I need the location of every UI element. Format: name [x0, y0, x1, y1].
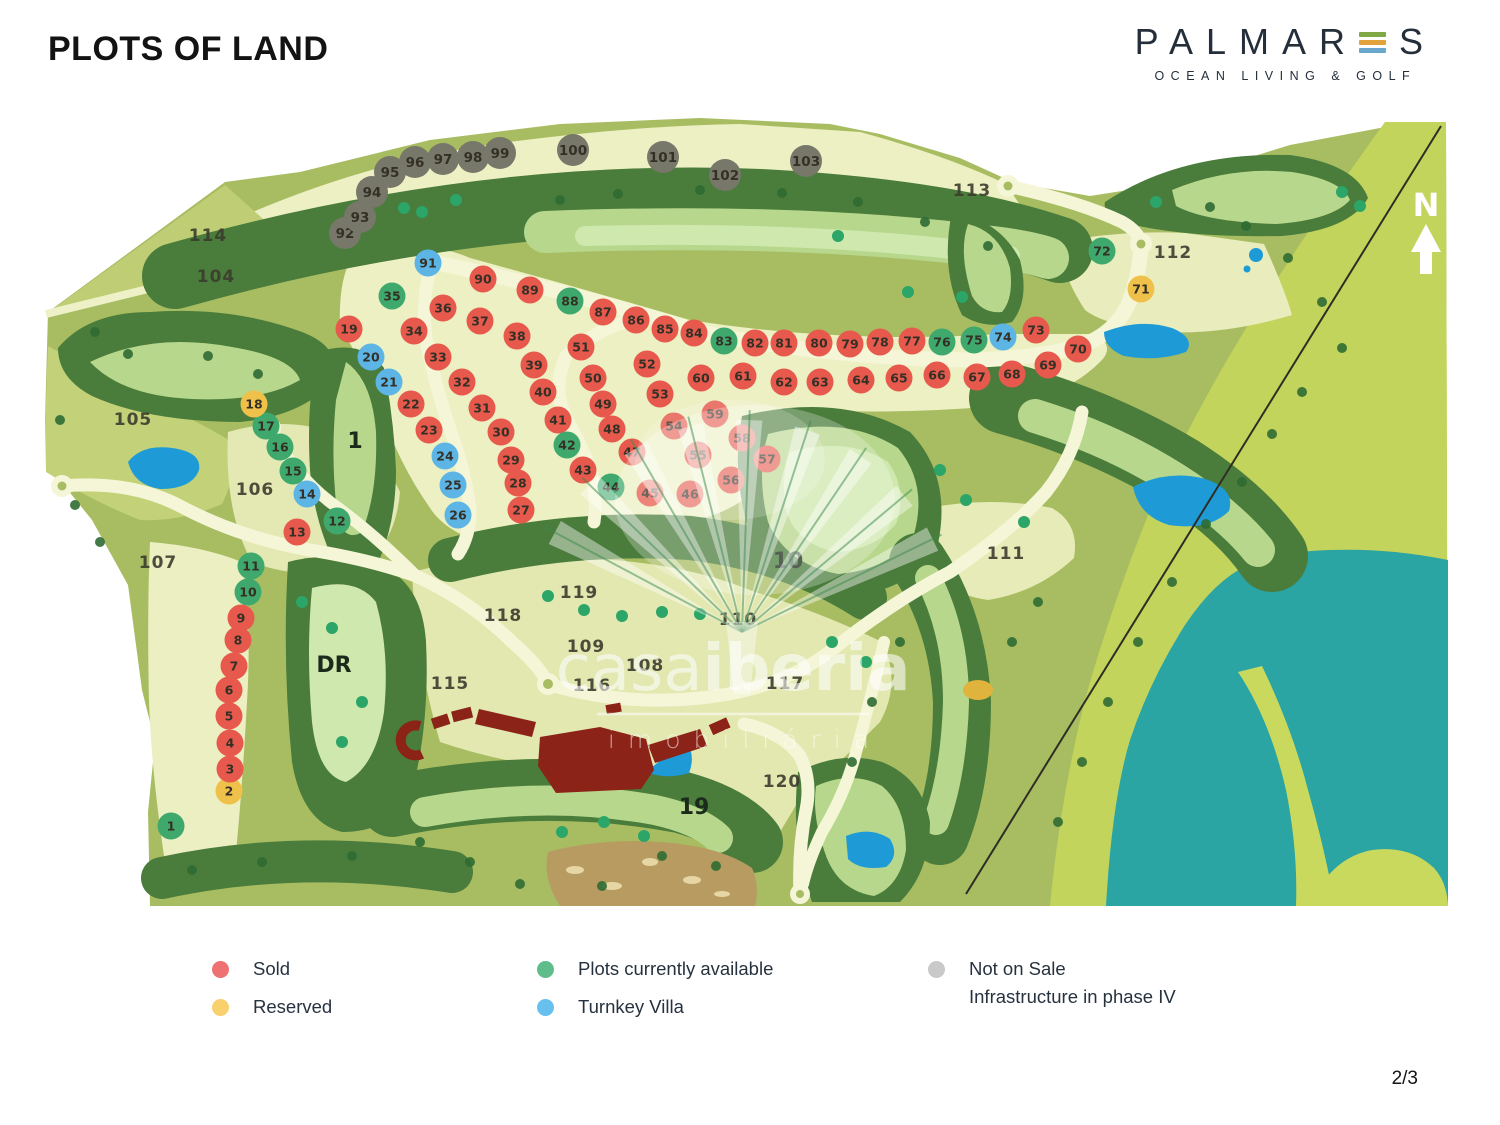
plot-number: 21 [380, 375, 397, 390]
plot-number: 2 [225, 784, 234, 799]
plot-marker-65: 65 [886, 365, 913, 392]
plot-number: 29 [502, 453, 519, 468]
hole-label-1: 1 [347, 429, 362, 454]
plot-marker-97: 97 [427, 143, 459, 175]
legend-label: Turnkey Villa [578, 996, 684, 1018]
legend-item-not-on-sale: Not on Sale [928, 958, 1176, 980]
plot-number: 61 [734, 369, 751, 384]
watermark-subtext: imobiliária [608, 725, 882, 754]
plot-marker-84: 84 [681, 320, 708, 347]
plot-marker-49: 49 [590, 391, 617, 418]
turnkey-dot-icon [537, 999, 554, 1016]
plot-number: 98 [464, 150, 483, 166]
plot-number: 13 [288, 525, 305, 540]
parcel-label-104: 104 [197, 267, 236, 287]
parcel-label-112: 112 [1154, 243, 1193, 263]
plot-marker-10: 10 [235, 579, 262, 606]
plot-number: 39 [525, 358, 542, 373]
plot-number: 43 [574, 463, 591, 478]
plot-number: 88 [561, 294, 578, 309]
plot-number: 93 [351, 210, 370, 226]
plot-marker-62: 62 [771, 369, 798, 396]
plot-number: 72 [1093, 244, 1110, 259]
plot-marker-52: 52 [634, 351, 661, 378]
hole-label-19: 19 [679, 795, 710, 820]
plot-marker-36: 36 [430, 295, 457, 322]
parcel-label-120: 120 [763, 772, 802, 792]
plot-number: 12 [328, 514, 345, 529]
plot-marker-40: 40 [530, 379, 557, 406]
plot-marker-64: 64 [848, 367, 875, 394]
legend-label: Reserved [253, 996, 332, 1018]
plot-number: 69 [1039, 358, 1056, 373]
plot-marker-35: 35 [379, 283, 406, 310]
plot-number: 17 [257, 419, 274, 434]
legend-label: Plots currently available [578, 958, 773, 980]
parcel-label-111: 111 [987, 544, 1026, 564]
plot-marker-67: 67 [964, 364, 991, 391]
plot-marker-88: 88 [557, 288, 584, 315]
reserved-dot-icon [212, 999, 229, 1016]
plot-number: 96 [406, 155, 425, 171]
plot-marker-79: 79 [837, 331, 864, 358]
plot-marker-37: 37 [467, 308, 494, 335]
plot-number: 53 [651, 387, 668, 402]
plot-number: 73 [1027, 323, 1044, 338]
plot-number: 28 [509, 476, 526, 491]
plot-number: 30 [492, 425, 510, 440]
plot-marker-70: 70 [1065, 336, 1092, 363]
plot-number: 25 [444, 478, 461, 493]
plot-number: 97 [434, 152, 453, 168]
legend-label: Not on Sale [969, 958, 1066, 980]
plot-number: 11 [242, 559, 259, 574]
plot-marker-89: 89 [517, 277, 544, 304]
plot-marker-3: 3 [217, 756, 244, 783]
plot-marker-99: 99 [484, 137, 516, 169]
plot-marker-25: 25 [440, 472, 467, 499]
legend-label-infrastructure: Infrastructure in phase IV [969, 986, 1176, 1008]
plot-number: 81 [775, 336, 792, 351]
plot-number: 85 [656, 322, 673, 337]
watermark-text: casaiberia [556, 632, 911, 706]
parcel-label-113: 113 [953, 181, 992, 201]
plot-number: 52 [638, 357, 655, 372]
plot-number: 50 [584, 371, 602, 386]
plot-marker-68: 68 [999, 361, 1026, 388]
plot-number: 18 [245, 397, 262, 412]
plot-marker-82: 82 [742, 330, 769, 357]
plot-number: 33 [429, 350, 446, 365]
plot-number: 76 [933, 335, 951, 350]
plot-marker-83: 83 [711, 328, 738, 355]
plot-number: 23 [420, 423, 437, 438]
plot-number: 63 [811, 375, 828, 390]
plot-marker-50: 50 [580, 365, 607, 392]
plot-number: 5 [225, 709, 234, 724]
plot-number: 32 [453, 375, 470, 390]
plot-number: 20 [362, 350, 380, 365]
plot-number: 91 [419, 256, 436, 271]
plot-number: 3 [226, 762, 235, 777]
page-number: 2/3 [1392, 1068, 1418, 1090]
plot-number: 15 [284, 464, 301, 479]
plot-number: 24 [436, 449, 454, 464]
plot-number: 100 [559, 143, 587, 159]
plot-number: 102 [711, 168, 739, 184]
plot-marker-12: 12 [324, 508, 351, 535]
plot-marker-21: 21 [376, 369, 403, 396]
plot-number: 79 [841, 337, 858, 352]
plot-number: 36 [434, 301, 452, 316]
plot-number: 7 [230, 659, 239, 674]
plot-marker-91: 91 [415, 250, 442, 277]
plot-marker-72: 72 [1089, 238, 1116, 265]
plot-marker-60: 60 [688, 365, 715, 392]
plot-number: 87 [594, 305, 611, 320]
plot-marker-26: 26 [445, 502, 472, 529]
plot-number: 37 [471, 314, 488, 329]
plot-marker-87: 87 [590, 299, 617, 326]
plot-marker-14: 14 [294, 481, 321, 508]
plot-number: 90 [474, 272, 492, 287]
plot-marker-61: 61 [730, 363, 757, 390]
plot-marker-66: 66 [924, 362, 951, 389]
plot-number: 60 [692, 371, 710, 386]
plot-number: 77 [903, 334, 920, 349]
plot-marker-74: 74 [990, 324, 1017, 351]
plot-marker-69: 69 [1035, 352, 1062, 379]
plot-number: 84 [685, 326, 703, 341]
plot-marker-33: 33 [425, 344, 452, 371]
hole-label-DR: DR [316, 653, 351, 678]
plot-number: 95 [381, 165, 400, 181]
plot-marker-103: 103 [790, 145, 822, 177]
plot-number: 82 [746, 336, 763, 351]
plot-number: 27 [512, 503, 529, 518]
plot-marker-27: 27 [508, 497, 535, 524]
plot-marker-96: 96 [399, 146, 431, 178]
plot-number: 62 [775, 375, 792, 390]
plot-number: 89 [521, 283, 538, 298]
plot-marker-4: 4 [217, 730, 244, 757]
plot-marker-86: 86 [623, 307, 650, 334]
parcel-label-119: 119 [560, 583, 599, 603]
plot-number: 48 [603, 422, 620, 437]
plot-marker-11: 11 [238, 553, 265, 580]
plot-marker-22: 22 [398, 391, 425, 418]
plot-marker-98: 98 [457, 141, 489, 173]
plot-marker-48: 48 [599, 416, 626, 443]
plots-map: 1234567891011121314151617181920212223242… [0, 0, 1500, 1125]
plot-number: 19 [340, 322, 357, 337]
parcel-label-114: 114 [189, 226, 228, 246]
plot-marker-15: 15 [280, 458, 307, 485]
plot-number: 51 [572, 340, 589, 355]
plot-number: 31 [473, 401, 490, 416]
plot-number: 103 [792, 154, 820, 170]
plot-marker-29: 29 [498, 447, 525, 474]
plot-number: 66 [928, 368, 946, 383]
plot-marker-5: 5 [216, 703, 243, 730]
plot-number: 83 [715, 334, 732, 349]
plot-marker-20: 20 [358, 344, 385, 371]
plot-marker-24: 24 [432, 443, 459, 470]
compass-label: N [1413, 186, 1440, 224]
plot-number: 86 [627, 313, 645, 328]
plot-marker-101: 101 [647, 141, 679, 173]
plot-marker-30: 30 [488, 419, 515, 446]
plot-number: 49 [594, 397, 611, 412]
plot-marker-13: 13 [284, 519, 311, 546]
plot-marker-85: 85 [652, 316, 679, 343]
plot-marker-102: 102 [709, 159, 741, 191]
plot-marker-23: 23 [416, 417, 443, 444]
plot-number: 26 [449, 508, 467, 523]
plot-marker-18: 18 [241, 391, 268, 418]
plot-number: 10 [239, 585, 257, 600]
plot-marker-32: 32 [449, 369, 476, 396]
plot-number: 67 [968, 370, 985, 385]
plot-marker-53: 53 [647, 381, 674, 408]
plot-marker-1: 1 [158, 813, 185, 840]
plot-marker-100: 100 [557, 134, 589, 166]
parcel-label-107: 107 [139, 553, 178, 573]
plot-number: 65 [890, 371, 907, 386]
plot-number: 1 [167, 819, 176, 834]
plot-marker-19: 19 [336, 316, 363, 343]
plot-number: 38 [508, 329, 525, 344]
legend-item-reserved: Reserved [212, 996, 332, 1018]
plot-marker-78: 78 [867, 329, 894, 356]
plot-number: 94 [363, 185, 382, 201]
plot-number: 64 [852, 373, 870, 388]
plot-number: 74 [994, 330, 1012, 345]
parcel-label-115: 115 [431, 674, 470, 694]
plot-marker-31: 31 [469, 395, 496, 422]
sold-dot-icon [212, 961, 229, 978]
plot-marker-9: 9 [228, 605, 255, 632]
plot-marker-73: 73 [1023, 317, 1050, 344]
plot-marker-80: 80 [806, 330, 833, 357]
plot-marker-76: 76 [929, 329, 956, 356]
plot-number: 8 [234, 633, 243, 648]
available-dot-icon [537, 961, 554, 978]
plot-marker-39: 39 [521, 352, 548, 379]
parcel-label-106: 106 [236, 480, 275, 500]
plot-number: 4 [226, 736, 235, 751]
plot-number: 71 [1132, 282, 1149, 297]
plot-number: 16 [271, 440, 289, 455]
plot-marker-75: 75 [961, 327, 988, 354]
plot-number: 70 [1069, 342, 1087, 357]
plot-number: 99 [491, 146, 510, 162]
plot-number: 40 [534, 385, 552, 400]
legend-label: Sold [253, 958, 290, 980]
plot-number: 80 [810, 336, 828, 351]
plot-marker-77: 77 [899, 328, 926, 355]
plot-number: 34 [405, 324, 423, 339]
plot-marker-42: 42 [554, 432, 581, 459]
plot-marker-41: 41 [545, 407, 572, 434]
plot-number: 35 [383, 289, 400, 304]
legend-item-turnkey: Turnkey Villa [537, 996, 773, 1018]
not-on-sale-dot-icon [928, 961, 945, 978]
plot-number: 78 [871, 335, 888, 350]
plot-number: 41 [549, 413, 566, 428]
plot-marker-90: 90 [470, 266, 497, 293]
plot-marker-7: 7 [221, 653, 248, 680]
parcel-label-118: 118 [484, 606, 523, 626]
plot-number: 14 [298, 487, 316, 502]
plot-number: 75 [965, 333, 982, 348]
legend-item-available: Plots currently available [537, 958, 773, 980]
plot-marker-38: 38 [504, 323, 531, 350]
plot-marker-28: 28 [505, 470, 532, 497]
plot-number: 42 [558, 438, 575, 453]
plot-marker-63: 63 [807, 369, 834, 396]
plot-marker-6: 6 [216, 677, 243, 704]
plot-marker-51: 51 [568, 334, 595, 361]
plot-number: 68 [1003, 367, 1020, 382]
plot-number: 22 [402, 397, 419, 412]
plot-marker-34: 34 [401, 318, 428, 345]
legend-item-sold: Sold [212, 958, 332, 980]
plot-marker-71: 71 [1128, 276, 1155, 303]
plot-marker-81: 81 [771, 330, 798, 357]
plot-number: 9 [237, 611, 246, 626]
plot-number: 101 [649, 150, 677, 166]
plot-number: 6 [225, 683, 234, 698]
parcel-label-105: 105 [114, 410, 153, 430]
